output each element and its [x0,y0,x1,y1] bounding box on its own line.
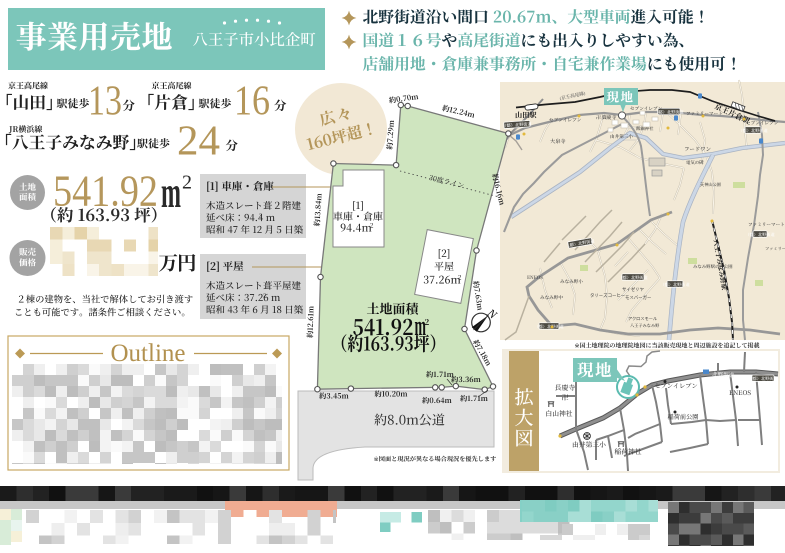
svg-text:2: 2 [259,212,262,220]
svg-text:天神山公園: 天神山公園 [700,182,721,188]
svg-text:面積: 面積 [19,191,38,203]
svg-text:国道１６号や高尾街道にも出入りしやすい為、: 国道１６号や高尾街道にも出入りしやすい為、 [363,28,695,51]
svg-text:アクロスモール: アクロスモール [628,316,657,322]
svg-text:（約163.93坪）: （約163.93坪） [332,330,446,357]
svg-text:稲荷神社: 稲荷神社 [614,446,641,456]
svg-text:事業用売地: 事業用売地 [16,12,174,57]
svg-text:約8.0m公道: 約8.0m公道 [374,410,445,429]
svg-text:約7.29m: 約7.29m [385,119,397,150]
svg-text:約0.64m: 約0.64m [422,396,452,406]
svg-text:ENEOS: ENEOS [527,275,543,281]
svg-text:約12.61m: 約12.61m [305,305,316,338]
svg-text:（約 163.93 坪）: （約 163.93 坪） [41,202,168,226]
svg-text:（都）北野街道: （都）北野街道 [618,275,648,281]
svg-text:ファミリーマート: ファミリーマート [748,222,785,228]
svg-text:万円: 万円 [159,248,197,276]
svg-text:[2] 平屋: [2] 平屋 [206,259,244,274]
svg-text:37.26m: 37.26m [423,273,461,288]
svg-text:モスバーガー: モスバーガー [625,294,651,301]
svg-text:みなみ野駅の丘公園: みなみ野駅の丘公園 [693,264,733,270]
svg-text:白山神社: 白山神社 [545,408,572,418]
svg-text:94.4m: 94.4m [340,221,372,236]
svg-text:「八王子みなみ野」: 「八王子みなみ野」 [0,130,146,154]
svg-text:由井第三小: 由井第三小 [572,439,607,449]
svg-text:約3.45m: 約3.45m [319,392,349,402]
svg-text:北野街道沿い間口 20.67m、大型車両進入可能！: 北野街道沿い間口 20.67m、大型車両進入可能！ [363,5,710,28]
svg-text:セブンイレブン: セブンイレブン [746,121,779,127]
svg-text:八王子みなみ野: 八王子みなみ野 [630,323,660,329]
svg-text:約10.20m: 約10.20m [375,390,409,400]
svg-text:ことも可能です。諸条件ご相談ください。: ことも可能です。諸条件ご相談ください。 [14,305,191,319]
svg-text:駅徒歩: 駅徒歩 [136,136,171,152]
svg-text:タリーズコーヒー: タリーズコーヒー [590,292,625,299]
svg-text:※国土地理院の地理院地図に当該販売現地と周辺施設を追記して掲: ※国土地理院の地理院地図に当該販売現地と周辺施設を追記して掲載 [574,341,759,350]
svg-text:[1] 車庫・倉庫: [1] 車庫・倉庫 [206,179,274,194]
svg-text:分: 分 [274,96,287,114]
svg-text:分: 分 [123,96,136,114]
svg-text:2: 2 [370,221,374,230]
svg-text:（都）北野街道: （都）北野街道 [748,376,778,382]
svg-text:13: 13 [88,79,122,125]
svg-text:昭和 43 年 6 月 18 日築: 昭和 43 年 6 月 18 日築 [206,302,304,316]
svg-text:セブンイレブン: セブンイレブン [630,106,663,112]
svg-text:駅徒歩: 駅徒歩 [56,96,91,112]
svg-text:（都）北野街道: （都）北野街道 [745,232,775,238]
svg-text:店舗用地・倉庫兼事務所・自宅兼作業場にも使用可！: 店舗用地・倉庫兼事務所・自宅兼作業場にも使用可！ [363,52,742,75]
svg-text:分: 分 [226,136,239,154]
svg-text:2: 2 [425,317,430,328]
svg-text:長慶寺: 長慶寺 [555,382,576,392]
svg-text:※図面と現況が異なる場合現況を優先します: ※図面と現況が異なる場合現況を優先します [374,454,497,463]
svg-text:2: 2 [263,292,266,300]
svg-text:ファミリーマート: ファミリーマート [765,246,785,252]
svg-text:2: 2 [458,273,462,282]
svg-text:24: 24 [177,119,220,165]
svg-text:山田駅: 山田駅 [515,111,537,121]
svg-text:16: 16 [234,79,270,125]
svg-text:八王子市小比企町: 八王子市小比企町 [193,28,317,50]
svg-text:駅徒歩: 駅徒歩 [198,96,233,112]
svg-text:Outline: Outline [111,340,186,367]
svg-text:みなみ野中: みなみ野中 [540,295,563,301]
svg-text:平屋: 平屋 [434,258,454,273]
svg-text:「山田」: 「山田」 [0,90,63,114]
svg-text:（都）北野街道: （都）北野街道 [660,282,690,288]
svg-text:サイゼリヤ: サイゼリヤ [622,286,645,293]
svg-text:現地: 現地 [577,357,613,381]
svg-text:2: 2 [182,172,192,194]
svg-text:現地: 現地 [606,88,634,106]
svg-text:昭和 47 年 12 月 5 日築: 昭和 47 年 12 月 5 日築 [206,222,304,236]
svg-text:価格: 価格 [19,257,37,269]
svg-text:セブンイレブン: セブンイレブン [654,381,697,390]
svg-text:（都）北野街道: （都）北野街道 [738,128,768,134]
svg-text:「片倉」: 「片倉」 [138,90,205,114]
svg-text:大泉寺: 大泉寺 [550,138,566,145]
svg-text:ENEOS: ENEOS [729,388,751,397]
svg-text:（都）北野街道: （都）北野街道 [534,324,564,330]
svg-text:卍: 卍 [562,393,569,403]
svg-text:由井第三小: 由井第三小 [610,134,633,140]
svg-text:北野街道: 北野街道 [712,370,735,379]
svg-text:稲荷前公園: 稲荷前公園 [668,412,699,421]
svg-text:図: 図 [514,424,533,451]
svg-text:約3.36m: 約3.36m [451,375,481,385]
svg-text:２棟の建物を、当社で解体してお引き渡す: ２棟の建物を、当社で解体してお引き渡す [17,292,194,306]
svg-text:約1.71m: 約1.71m [460,394,489,404]
svg-text:電気の碑: 電気の碑 [686,159,704,166]
svg-text:セブンイレブン: セブンイレブン [549,118,582,124]
svg-text:みなみ野小: みなみ野小 [560,279,583,285]
svg-text:フードワン: フードワン [684,145,711,153]
